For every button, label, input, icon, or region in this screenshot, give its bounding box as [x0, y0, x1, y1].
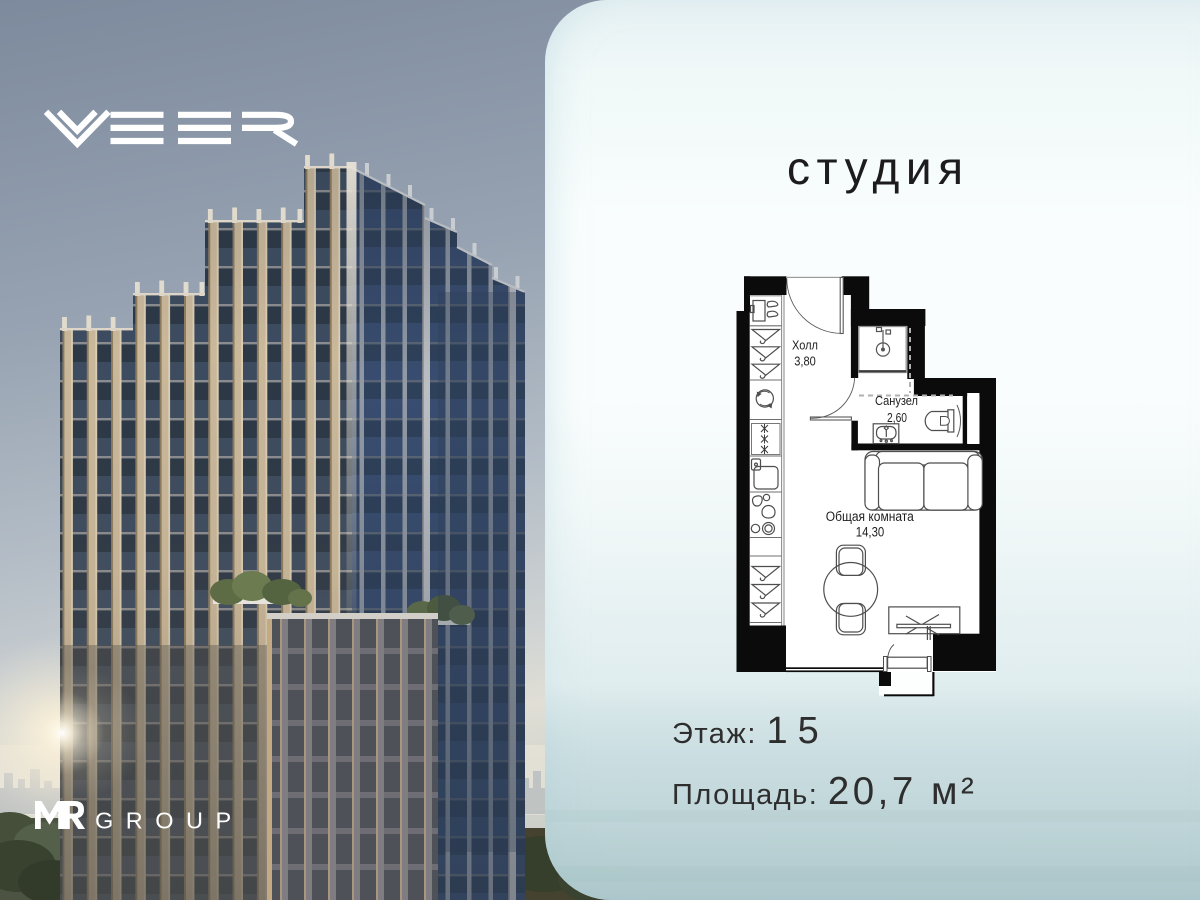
svg-text:Санузел: Санузел [875, 393, 918, 408]
svg-text:Общая комната: Общая комната [826, 509, 914, 524]
svg-text:14,30: 14,30 [856, 525, 885, 540]
svg-text:3,80: 3,80 [794, 354, 816, 369]
svg-text:2,60: 2,60 [887, 410, 907, 425]
svg-text:Холл: Холл [792, 338, 818, 353]
svg-text:GROUP: GROUP [95, 808, 244, 834]
